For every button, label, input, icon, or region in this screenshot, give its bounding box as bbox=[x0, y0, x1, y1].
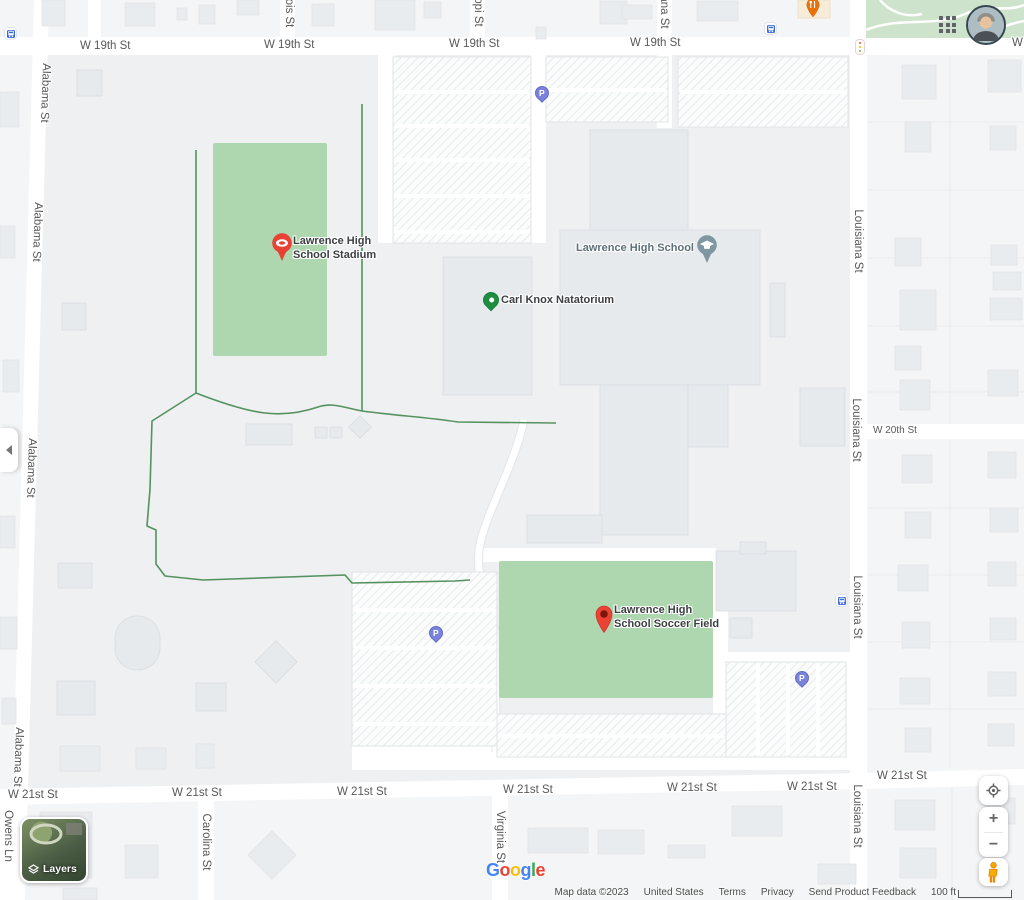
school-pin-icon[interactable] bbox=[696, 234, 718, 264]
soccer-label-line2: School Soccer Field bbox=[614, 618, 719, 632]
scale-bar bbox=[958, 890, 1012, 898]
street-label-w21st: W 21st St bbox=[172, 787, 222, 799]
street-label-owens: Owens Ln bbox=[2, 810, 14, 862]
street-label-w20th: W 20th St bbox=[873, 425, 917, 436]
layers-icon bbox=[28, 864, 39, 875]
pegman-icon bbox=[987, 862, 1000, 883]
street-label-virginia: Virginia St bbox=[494, 811, 506, 863]
street-label-w21st: W 21st St bbox=[787, 781, 837, 793]
zoom-in-button[interactable]: + bbox=[979, 807, 1008, 832]
my-location-button[interactable] bbox=[979, 776, 1008, 805]
street-label-louisiana: Louisiana St bbox=[852, 209, 864, 272]
zoom-panel: + − bbox=[979, 807, 1008, 857]
soccer-label-line1: Lawrence High bbox=[614, 604, 719, 618]
street-label-louisiana: Louisiana St bbox=[850, 398, 862, 461]
street-label-carolina: Carolina St bbox=[200, 814, 212, 871]
street-label-alabama: Alabama St bbox=[30, 202, 44, 262]
privacy-link[interactable]: Privacy bbox=[761, 887, 794, 898]
layers-label: Layers bbox=[43, 863, 77, 875]
google-logo[interactable]: Google bbox=[486, 860, 545, 881]
map-data-text: Map data ©2023 bbox=[555, 887, 629, 898]
street-label-illinois: ois St bbox=[283, 0, 295, 27]
street-label-w19th: W 19th St bbox=[1012, 37, 1024, 49]
my-location-icon bbox=[986, 783, 1001, 798]
zoom-out-button[interactable]: − bbox=[979, 833, 1008, 858]
stadium-label-line2: School Stadium bbox=[293, 249, 376, 263]
traffic-light-icon bbox=[855, 39, 865, 55]
feedback-link[interactable]: Send Product Feedback bbox=[809, 887, 916, 898]
bus-stop-icon[interactable] bbox=[5, 28, 16, 39]
scale-label: 100 ft bbox=[931, 887, 956, 898]
street-label-w21st: W 21st St bbox=[8, 789, 58, 801]
google-apps-grid-icon[interactable] bbox=[938, 15, 960, 37]
stadium-label-line1: Lawrence High bbox=[293, 235, 376, 249]
street-label-w21st: W 21st St bbox=[877, 770, 927, 782]
street-label-w21st: W 21st St bbox=[667, 782, 717, 794]
layers-button[interactable]: Layers bbox=[20, 817, 88, 883]
soccer-label[interactable]: Lawrence High School Soccer Field bbox=[614, 604, 719, 631]
attribution-bar: Map data ©2023 United States Terms Priva… bbox=[555, 887, 1013, 898]
street-label-w19th: W 19th St bbox=[630, 37, 681, 49]
scale-control: 100 ft bbox=[931, 887, 1012, 898]
stadium-label[interactable]: Lawrence High School Stadium bbox=[293, 235, 376, 262]
street-label-louisiana: Louisiana St bbox=[851, 575, 863, 638]
street-label-w19th: W 19th St bbox=[449, 38, 500, 50]
bus-stop-icon[interactable] bbox=[765, 23, 776, 34]
street-label-w21st: W 21st St bbox=[503, 784, 553, 796]
stadium-pin-icon[interactable] bbox=[271, 232, 293, 262]
soccer-pin-icon[interactable] bbox=[594, 604, 614, 633]
terms-link[interactable]: Terms bbox=[719, 887, 746, 898]
google-maps-screen: W 19th St W 19th St W 19th St W 19th St … bbox=[0, 0, 1024, 900]
street-label-mississippi: ppi St bbox=[472, 0, 484, 27]
profile-avatar[interactable] bbox=[966, 5, 1006, 45]
street-label-alabama: Alabama St bbox=[11, 727, 25, 787]
natatorium-label[interactable]: Carl Knox Natatorium bbox=[501, 294, 614, 308]
restaurant-pin-icon[interactable] bbox=[805, 0, 821, 18]
street-label-louisiana: Louisiana St bbox=[851, 784, 863, 847]
region-text: United States bbox=[644, 887, 704, 898]
street-label-w19th: W 19th St bbox=[264, 39, 315, 51]
avatar-photo bbox=[968, 7, 1004, 43]
map-canvas[interactable] bbox=[0, 0, 1024, 900]
street-label-alabama: Alabama St bbox=[38, 63, 52, 123]
collapse-arrow-icon bbox=[6, 445, 12, 455]
layers-thumbnail bbox=[22, 819, 88, 861]
pegman-button[interactable] bbox=[979, 858, 1008, 886]
street-label-indiana: ana St bbox=[658, 0, 670, 29]
bus-stop-icon[interactable] bbox=[836, 595, 847, 606]
street-label-w19th: W 19th St bbox=[80, 40, 131, 52]
street-label-alabama: Alabama St bbox=[24, 438, 38, 498]
street-label-w21st: W 21st St bbox=[337, 786, 387, 798]
side-panel-collapse-handle[interactable] bbox=[0, 428, 18, 472]
school-label[interactable]: Lawrence High School bbox=[576, 242, 694, 256]
